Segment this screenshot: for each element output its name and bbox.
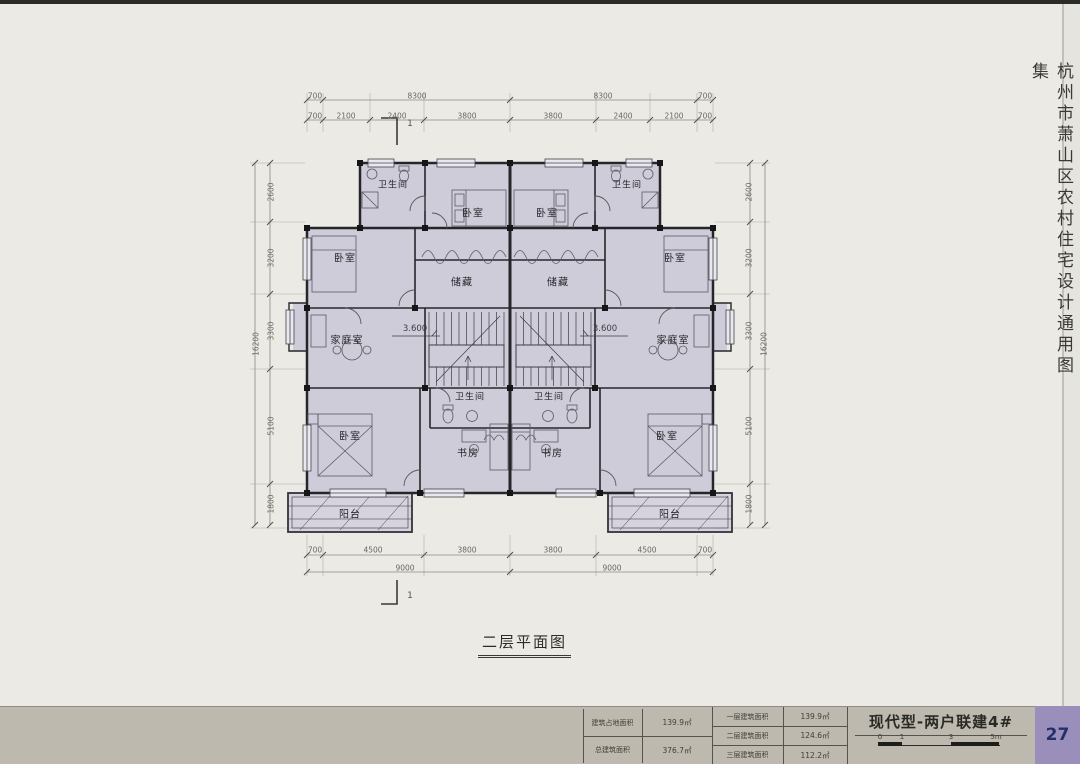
dim-label: 8300 [593, 92, 612, 101]
dim-label: 9000 [395, 564, 414, 573]
scale-label: 5m [990, 733, 1001, 741]
section-number-top: 1 [407, 119, 413, 129]
room-label-bedroom-mid-right: 卧室 [664, 250, 686, 265]
room-label-study-left: 书房 [457, 445, 479, 460]
area-label: 建筑占地面积 [583, 709, 642, 736]
dim-label: 700 [698, 112, 712, 121]
dim-label: 3300 [267, 321, 276, 340]
dim-label: 5100 [745, 416, 754, 435]
atlas-side-title: 杭州市萧山区农村住宅设计通用图集 [1026, 62, 1076, 392]
dim-label-total: 16200 [760, 332, 769, 356]
series-title: 现代型-两户联建4# [847, 708, 1035, 734]
room-label-bedroom-top-left: 卧室 [462, 205, 484, 220]
dim-label: 3800 [457, 112, 476, 121]
room-label-bedroom-mid-left: 卧室 [334, 250, 356, 265]
room-label-study-right: 书房 [541, 445, 563, 460]
dim-label: 700 [308, 112, 322, 121]
scale-bar-segment [951, 742, 999, 746]
area-label: 三层建筑面积 [712, 745, 783, 764]
dim-label: 700 [308, 92, 322, 101]
area-value: 124.6㎡ [783, 726, 847, 745]
dim-label: 2400 [613, 112, 632, 121]
dim-label: 9000 [602, 564, 621, 573]
area-label: 二层建筑面积 [712, 726, 783, 745]
dim-label: 1800 [267, 494, 276, 513]
plan-title: 二层平面图 [478, 631, 571, 658]
area-value: 139.9㎡ [642, 709, 712, 736]
dim-label: 2400 [387, 112, 406, 121]
dim-label: 3800 [543, 546, 562, 555]
dim-label: 3800 [543, 112, 562, 121]
dim-label: 8300 [407, 92, 426, 101]
atlas-page: 卫生间 卫生间 卧室 卧室 卧室 卧室 储藏 储藏 家庭室 家庭室 卫生间 卫生… [0, 0, 1080, 764]
scale-bar-segment [878, 742, 902, 746]
dim-label: 700 [698, 92, 712, 101]
scale-bar: 0 1 3 5m [878, 736, 1000, 750]
room-label-balcony-left: 阳台 [339, 506, 361, 521]
area-value: 112.2㎡ [783, 745, 847, 764]
room-label-balcony-right: 阳台 [659, 506, 681, 521]
dim-label: 3200 [267, 248, 276, 267]
area-value: 376.7㎡ [642, 737, 712, 763]
room-label-family-right: 家庭室 [657, 332, 690, 347]
area-label: 总建筑面积 [583, 737, 642, 763]
dim-label: 2100 [336, 112, 355, 121]
dim-label: 1800 [745, 494, 754, 513]
page-number: 27 [1035, 706, 1080, 764]
scale-label: 0 [878, 733, 882, 741]
area-value: 139.9㎡ [783, 707, 847, 726]
dim-label-total: 16200 [252, 332, 261, 356]
dim-label: 3300 [745, 321, 754, 340]
room-label-bathroom-top-right: 卫生间 [612, 178, 642, 191]
dim-label: 700 [308, 546, 322, 555]
dim-label: 2600 [745, 182, 754, 201]
room-label-bathroom-mid-left: 卫生间 [455, 390, 485, 403]
room-label-bedroom-bottom-left: 卧室 [339, 428, 361, 443]
dim-label: 5100 [267, 416, 276, 435]
room-label-bedroom-bottom-right: 卧室 [656, 428, 678, 443]
dim-label: 3200 [745, 248, 754, 267]
dim-label: 2600 [267, 182, 276, 201]
room-label-storage-right: 储藏 [547, 274, 569, 289]
room-label-bathroom-top-left: 卫生间 [378, 178, 408, 191]
scale-label: 3 [949, 733, 953, 741]
dim-label: 4500 [637, 546, 656, 555]
room-label-bedroom-top-right: 卧室 [536, 205, 558, 220]
level-label-right: 3.600 [593, 324, 617, 334]
room-label-storage-left: 储藏 [451, 274, 473, 289]
dim-label: 4500 [363, 546, 382, 555]
room-label-family-left: 家庭室 [331, 332, 364, 347]
section-number-bottom: 1 [407, 591, 413, 601]
room-label-bathroom-mid-right: 卫生间 [534, 390, 564, 403]
level-label-left: 3.600 [403, 324, 427, 334]
dim-label: 2100 [664, 112, 683, 121]
scale-label: 1 [900, 733, 904, 741]
dim-label: 700 [698, 546, 712, 555]
area-label: 一层建筑面积 [712, 707, 783, 726]
dim-label: 3800 [457, 546, 476, 555]
